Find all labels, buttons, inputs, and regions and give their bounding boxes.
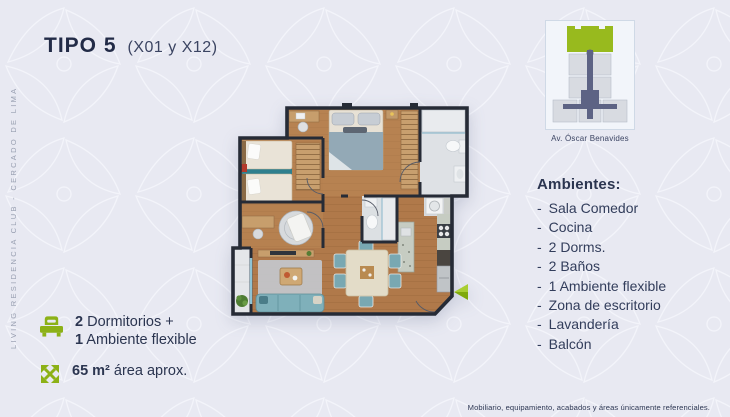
area-label: área aprox. — [110, 363, 187, 379]
bullet: - — [537, 258, 542, 274]
ambientes-item: -Lavandería — [537, 315, 666, 334]
ambientes-list: -Sala Comedor -Cocina -2 Dorms. -2 Baños… — [537, 199, 666, 354]
ambientes-item: -Zona de escritorio — [537, 296, 666, 315]
ambientes-item-label: 2 Baños — [549, 258, 600, 274]
ambientes-item-label: 2 Dorms. — [549, 239, 606, 255]
ambientes-item-label: Cocina — [549, 219, 593, 235]
bathroom-1 — [420, 108, 467, 196]
ambientes-item-label: 1 Ambiente flexible — [549, 278, 667, 294]
plan-type-title: TIPO 5 — [44, 34, 117, 58]
bullet: - — [537, 200, 542, 216]
ambientes-item: -Cocina — [537, 218, 666, 237]
bullet: - — [537, 336, 542, 352]
laundry-area — [424, 196, 452, 216]
feature-bedrooms-text: 2 Dormitorios + 1 Ambiente flexible — [75, 313, 197, 349]
ambientes-item-label: Lavandería — [549, 316, 619, 332]
key-plan-image — [545, 20, 635, 130]
feature-area-text: 65 m² área aprox. — [72, 362, 187, 380]
ambientes-item: -1 Ambiente flexible — [537, 277, 666, 296]
brand-side-label: LIVING RESIDENCIA CLUB - CERCADO DE LIMA — [9, 70, 18, 366]
ambientes-section: Ambientes: -Sala Comedor -Cocina -2 Dorm… — [537, 176, 666, 354]
bedrooms-count: 2 — [75, 314, 83, 330]
feature-bedrooms: 2 Dormitorios + 1 Ambiente flexible — [40, 313, 197, 349]
expand-icon — [40, 364, 60, 384]
bathroom-2 — [362, 196, 397, 242]
bullet: - — [537, 239, 542, 255]
page-title: TIPO 5 (X01 y X12) — [44, 34, 218, 58]
entrance-arrow-icon — [454, 284, 468, 300]
ambientes-heading: Ambientes: — [537, 176, 666, 193]
ambientes-item-label: Sala Comedor — [549, 200, 639, 216]
highlighted-unit — [567, 26, 613, 52]
ambientes-item-label: Zona de escritorio — [549, 297, 661, 313]
balcony — [233, 248, 251, 314]
features-section: 2 Dormitorios + 1 Ambiente flexible 65 m… — [40, 313, 197, 384]
bullet: - — [537, 297, 542, 313]
plan-units-subtitle: (X01 y X12) — [128, 39, 218, 57]
feature-area: 65 m² área aprox. — [40, 362, 197, 384]
flyer-page: TIPO 5 (X01 y X12) LIVING RESIDENCIA CLU… — [0, 0, 730, 417]
ambientes-item-label: Balcón — [549, 336, 592, 352]
bedrooms-label: Dormitorios + — [83, 314, 174, 330]
bullet: - — [537, 316, 542, 332]
bed-icon — [40, 315, 63, 337]
floor-plan-image — [230, 100, 470, 332]
flex-count: 1 — [75, 332, 83, 348]
bullet: - — [537, 278, 542, 294]
disclaimer-text: Mobiliario, equipamiento, acabados y áre… — [468, 403, 710, 412]
ambientes-item: -Balcón — [537, 335, 666, 354]
street-label: Av. Óscar Benavides — [520, 134, 660, 143]
flex-label: Ambiente flexible — [83, 332, 197, 348]
ambientes-item: -Sala Comedor — [537, 199, 666, 218]
area-value: 65 m² — [72, 363, 110, 379]
bullet: - — [537, 219, 542, 235]
ambientes-item: -2 Baños — [537, 257, 666, 276]
ambientes-item: -2 Dorms. — [537, 238, 666, 257]
